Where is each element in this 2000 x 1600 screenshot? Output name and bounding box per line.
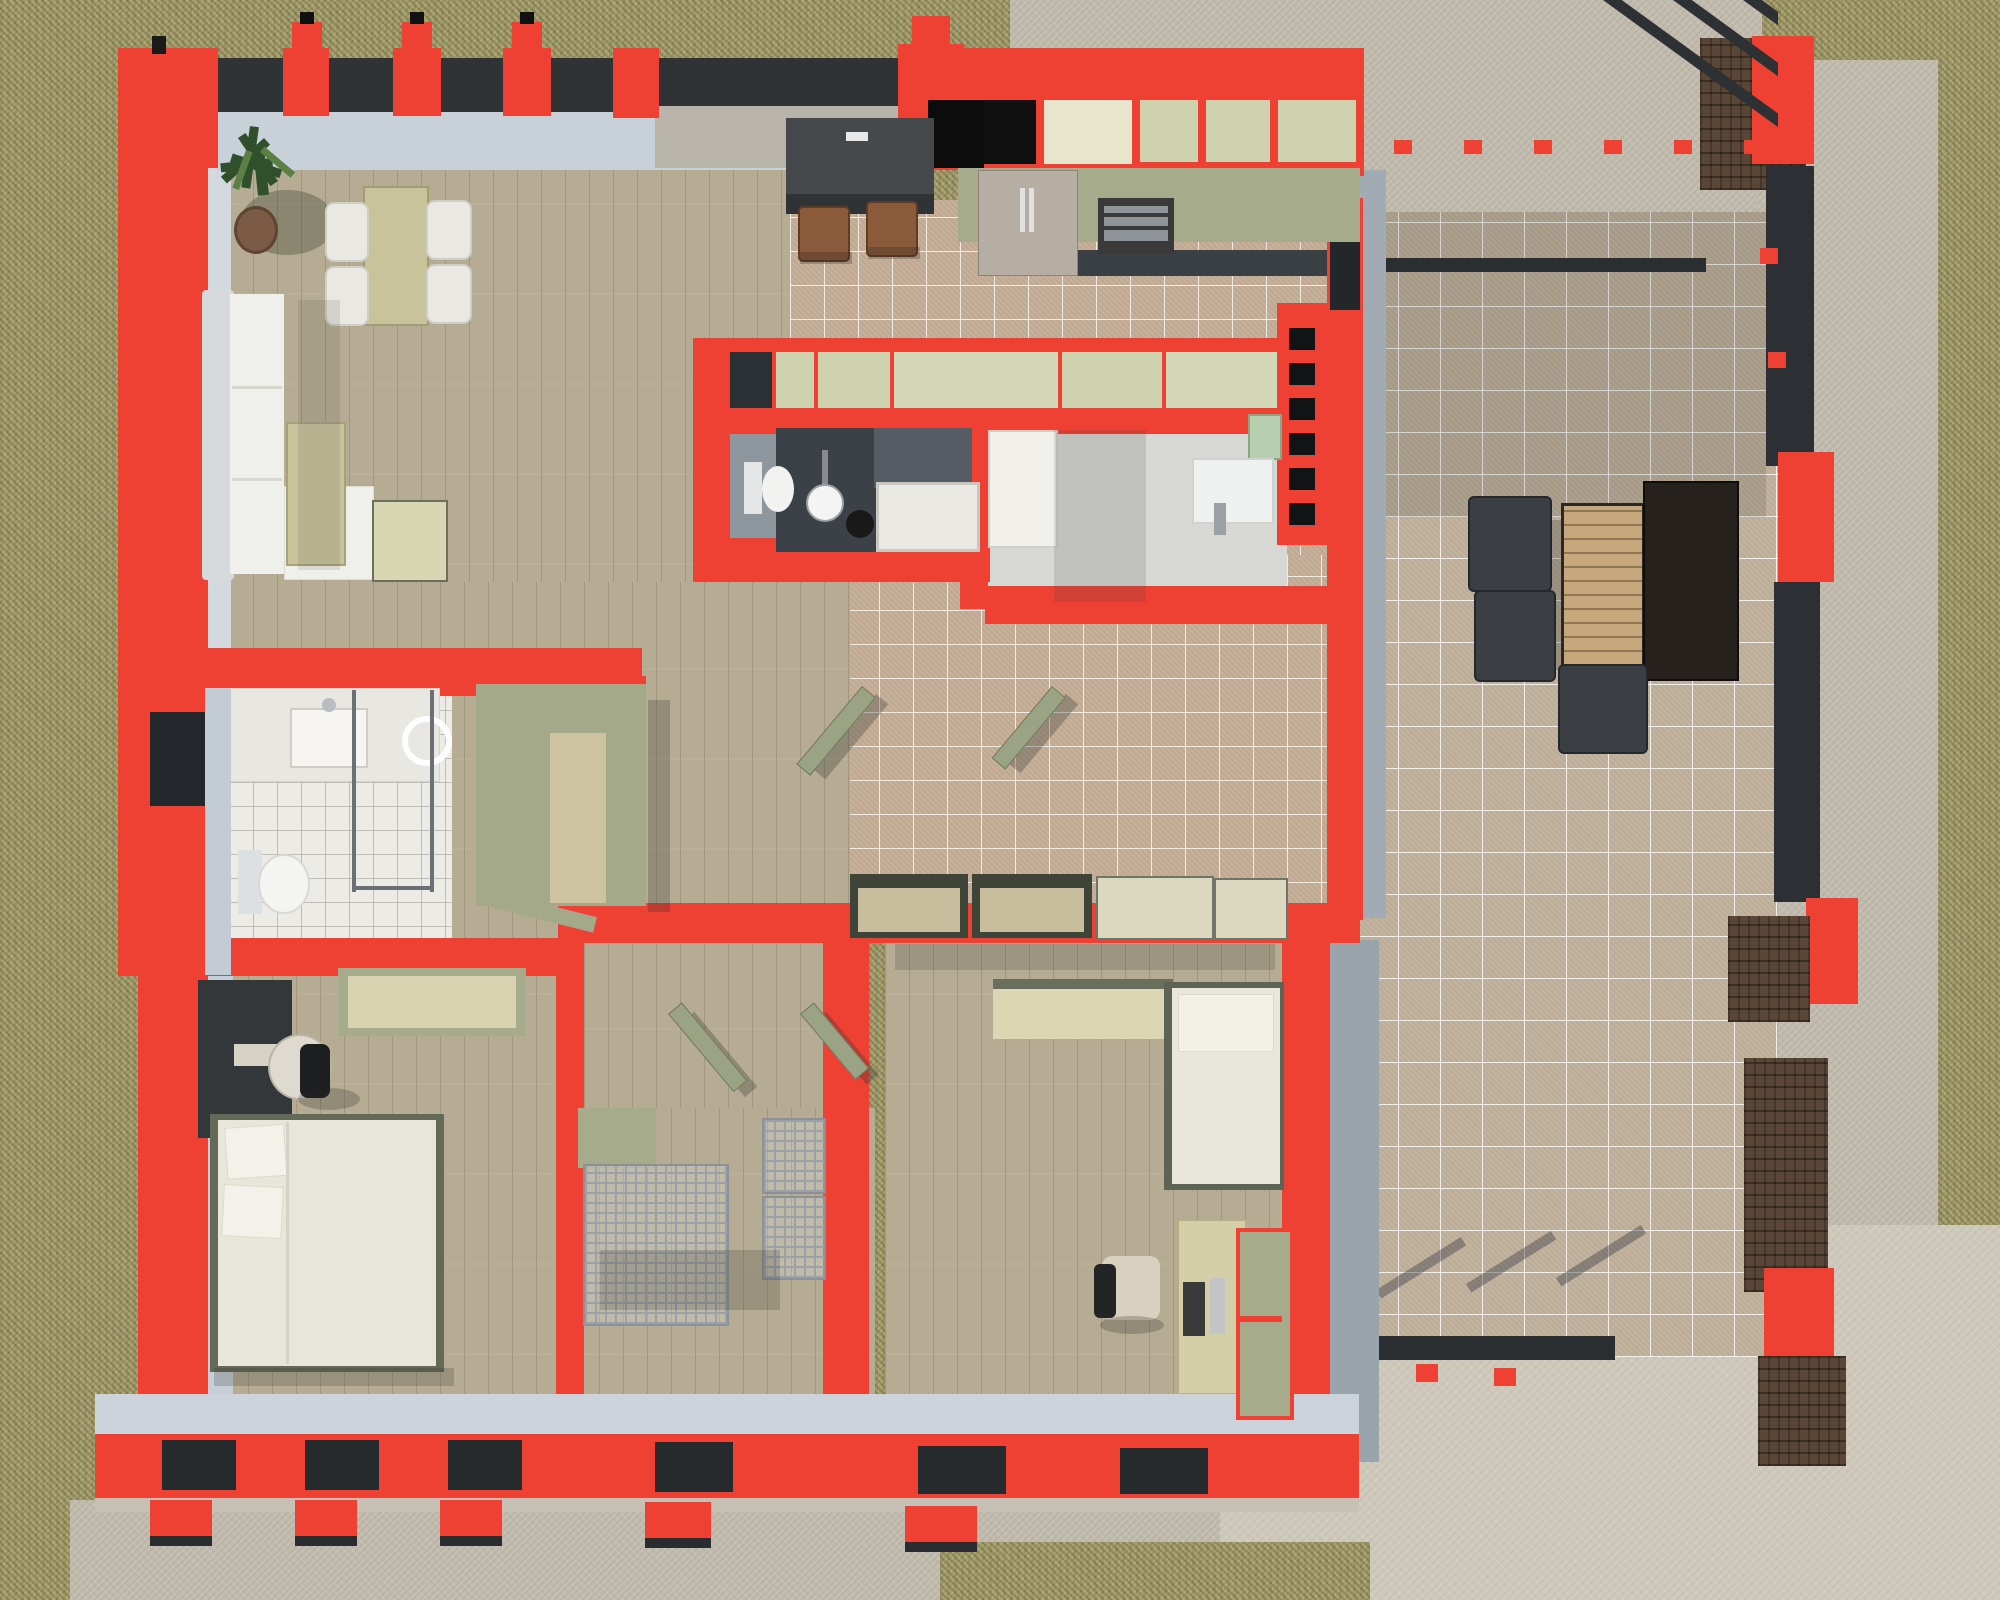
glassblock-wall	[1277, 303, 1329, 545]
closet-cell	[1166, 352, 1278, 410]
kids-keyboard	[1183, 1282, 1205, 1336]
closet-shadow	[600, 1250, 780, 1310]
bathtub	[876, 482, 980, 552]
bottom-window	[655, 1442, 733, 1492]
bottom-window	[918, 1446, 1006, 1494]
shower-glass	[430, 690, 434, 892]
stool-shadow	[800, 252, 852, 264]
bottom-window	[1120, 1448, 1208, 1494]
top-pier-stub	[402, 22, 432, 50]
bottom-stub	[905, 1506, 977, 1546]
red-block-right-2	[1806, 898, 1858, 1004]
top-pier-c	[393, 48, 441, 116]
kids-shelf	[1236, 1228, 1294, 1420]
top-pier-b	[283, 48, 329, 116]
bed-pillow	[224, 1124, 287, 1180]
kids-chair-shadow	[1100, 1316, 1164, 1334]
bath2-shadow	[1054, 430, 1146, 602]
bottom-stub	[645, 1502, 711, 1542]
track-red-clip-1	[1416, 1364, 1438, 1382]
left-wall-upper	[118, 48, 208, 976]
sink-basin	[290, 708, 368, 768]
closet-cabinet	[578, 1108, 656, 1168]
upper-cab-sage	[1206, 100, 1270, 162]
bottom-stub	[440, 1500, 502, 1540]
oven-rack	[1104, 230, 1168, 241]
kids-storage-inner	[980, 888, 1084, 932]
pantry-nook	[928, 100, 984, 168]
track-red-clip-2	[1494, 1368, 1516, 1386]
sofa-seam	[232, 478, 282, 481]
kids-shelf-divider	[1240, 1316, 1282, 1322]
beam-anchor	[1394, 140, 1412, 154]
wardrobe-shelf-column	[550, 733, 606, 903]
bath1-drain	[846, 510, 874, 538]
bottom-wall-face	[95, 1394, 1359, 1438]
brick-pier-right-3	[1758, 1356, 1846, 1466]
kids-monitor	[1210, 1278, 1225, 1334]
kids-storage-box-pale	[1214, 878, 1288, 940]
bottom-stub	[295, 1500, 357, 1540]
outdoor-tv-console	[1643, 481, 1739, 681]
chimney-detail	[152, 36, 166, 54]
wall-bedroom-divider	[556, 938, 584, 1467]
fridge-handle	[1020, 188, 1025, 232]
kids-storage-box-pale	[1096, 876, 1214, 940]
top-pier-f-stub	[912, 16, 950, 46]
shower-head	[806, 484, 844, 522]
bed-shadow	[214, 1368, 454, 1386]
brick-pier-right-1	[1728, 916, 1810, 1022]
kids-north-shadow	[895, 944, 1275, 970]
bottom-window	[162, 1440, 236, 1490]
top-pier-corner	[118, 48, 218, 168]
top-pier-tip	[520, 12, 534, 24]
red-marker-right-2	[1768, 352, 1786, 368]
bottom-sill-band	[95, 1498, 1359, 1512]
top-pier-tip	[410, 12, 424, 24]
bed-pillow	[221, 1184, 284, 1239]
upper-cab-sage	[1140, 100, 1198, 162]
closet-cell	[894, 352, 1058, 410]
toilet-tank-bath1	[744, 462, 762, 514]
shower-glass	[352, 690, 356, 892]
red-block-right-3	[1764, 1268, 1834, 1366]
kids-storage-inner	[858, 888, 960, 932]
top-pier-tip	[300, 12, 314, 24]
bath2-south-wall	[985, 586, 1329, 624]
closet-cell	[818, 352, 890, 410]
bottom-stub	[150, 1500, 212, 1540]
red-block-right-1	[1778, 452, 1834, 582]
bottom-window	[305, 1440, 379, 1490]
side-table	[372, 500, 448, 582]
outdoor-lounge-chair-1	[1468, 496, 1552, 592]
closet-cell-dark	[730, 352, 772, 410]
chair-shadow	[298, 1088, 360, 1110]
water-heater	[1248, 414, 1282, 460]
bottom-stub-frame	[905, 1542, 977, 1552]
beam-anchor	[1604, 140, 1622, 154]
sink-bath2	[1192, 458, 1274, 524]
beam-anchor	[1464, 140, 1482, 154]
sink-pipe	[1214, 503, 1226, 535]
beam-anchor	[1674, 140, 1692, 154]
top-pier-d	[503, 48, 551, 116]
beam-anchor	[1534, 140, 1552, 154]
glass-panel-right-2	[1774, 582, 1820, 902]
dining-chair	[426, 200, 472, 260]
grass-strip-bottom	[940, 1542, 1370, 1600]
towel-ring	[402, 716, 452, 766]
top-pier-stub	[512, 22, 542, 50]
glass-block-window	[1289, 398, 1315, 420]
living-shadow	[298, 300, 340, 570]
shower-glass	[352, 886, 434, 890]
glass-block-window	[1289, 503, 1315, 525]
upper-cab-cream	[1044, 100, 1132, 164]
top-pier-stub	[292, 22, 322, 50]
wardrobe-top-edge	[476, 676, 646, 684]
bedroom-wardrobe-front	[348, 976, 516, 1028]
sofa-seat	[230, 294, 284, 574]
wardrobe-shadow	[648, 700, 670, 912]
sofa-seam	[232, 386, 282, 389]
stool-shadow	[868, 247, 920, 259]
dining-chair	[325, 202, 369, 262]
brick-pier-right-2	[1744, 1058, 1828, 1292]
toilet-bowl-bath1	[762, 466, 794, 512]
bathleft-west-face	[205, 688, 231, 975]
kids-east-wall-face	[1327, 940, 1379, 1462]
upper-cab-sage	[1278, 100, 1356, 162]
oven-rack	[1104, 217, 1168, 226]
beam-anchor	[1744, 140, 1762, 154]
floorplan-render	[0, 0, 2000, 1600]
sink-faucet	[322, 698, 336, 712]
kids-chair-back	[1094, 1264, 1116, 1318]
wire-rack	[762, 1118, 826, 1194]
dining-chair	[426, 264, 472, 324]
oven-rack	[1104, 206, 1168, 213]
closet-cell	[776, 352, 814, 410]
glass-block-window	[1289, 468, 1315, 490]
bottom-stub-frame	[295, 1536, 357, 1546]
outdoor-lounge-chair-3	[1558, 664, 1648, 754]
fridge	[978, 170, 1078, 276]
toilet-bowl	[258, 854, 310, 914]
top-pier-e	[613, 48, 659, 118]
closet-cell	[1062, 352, 1162, 410]
dining-table	[363, 186, 429, 326]
bottom-window	[448, 1440, 522, 1490]
glass-block-window	[1289, 433, 1315, 455]
glass-block-window	[1289, 363, 1315, 385]
bottom-stub-frame	[150, 1536, 212, 1546]
glass-block-window	[1289, 328, 1315, 350]
bar-tap	[846, 132, 868, 141]
mattress-seam	[286, 1122, 289, 1364]
bottom-stub-frame	[440, 1536, 502, 1546]
outdoor-lounge-chair-2	[1474, 590, 1556, 682]
fridge-handle	[1029, 188, 1034, 232]
shower-tray-bath2	[988, 430, 1058, 548]
outdoor-table	[1561, 503, 1645, 669]
kids-pillow	[1178, 994, 1274, 1052]
plant-pot	[234, 206, 278, 254]
bottom-stub-frame	[645, 1538, 711, 1548]
wall-closet-divider	[823, 903, 869, 1465]
pergola-edge-beam	[1352, 258, 1706, 272]
kids-wardrobe-edge	[993, 979, 1173, 989]
shower-upper-wall	[874, 428, 972, 488]
